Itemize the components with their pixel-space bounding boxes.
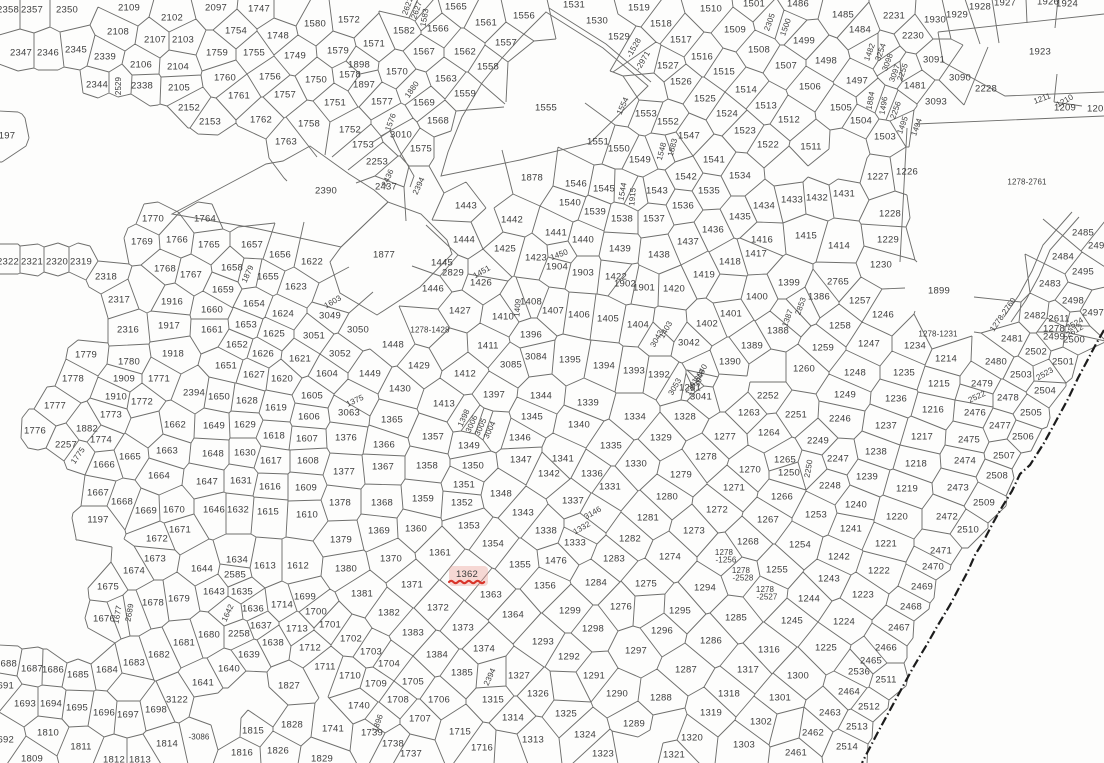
svg-text:1536: 1536 [672, 200, 694, 211]
svg-text:1776: 1776 [24, 425, 46, 436]
svg-text:1408: 1408 [520, 296, 542, 307]
svg-text:1705: 1705 [402, 676, 424, 687]
svg-text:3052: 3052 [329, 348, 351, 359]
svg-text:3041: 3041 [690, 391, 712, 402]
svg-text:2108: 2108 [107, 26, 129, 37]
svg-text:1282: 1282 [619, 533, 641, 544]
svg-text:1301: 1301 [769, 692, 791, 703]
svg-text:1923: 1923 [1029, 46, 1051, 57]
svg-text:1433: 1433 [781, 194, 803, 205]
svg-text:1222: 1222 [868, 565, 890, 576]
svg-text:1636: 1636 [242, 603, 264, 614]
svg-text:2829: 2829 [442, 267, 464, 278]
svg-text:1670: 1670 [163, 504, 185, 515]
svg-text:1631: 1631 [230, 475, 252, 486]
svg-text:1676: 1676 [93, 613, 115, 624]
svg-text:1410: 1410 [492, 311, 514, 322]
svg-text:1338: 1338 [535, 525, 557, 536]
svg-text:1749: 1749 [284, 50, 306, 61]
svg-text:1829: 1829 [311, 753, 333, 763]
svg-text:1660: 1660 [201, 304, 223, 315]
svg-text:2347: 2347 [10, 47, 32, 58]
svg-text:1757: 1757 [274, 89, 296, 100]
svg-text:1368: 1368 [371, 497, 393, 508]
svg-text:1429: 1429 [408, 360, 430, 371]
svg-text:1577: 1577 [371, 96, 393, 107]
svg-text:1396: 1396 [520, 329, 542, 340]
svg-text:1273: 1273 [683, 525, 705, 536]
svg-text:1253: 1253 [805, 509, 827, 520]
svg-text:1383: 1383 [402, 627, 424, 638]
svg-text:1882: 1882 [76, 423, 98, 434]
svg-text:1930: 1930 [924, 14, 946, 25]
svg-text:1218: 1218 [905, 458, 927, 469]
svg-text:1376: 1376 [335, 432, 357, 443]
svg-text:1537: 1537 [643, 213, 665, 224]
svg-text:2346: 2346 [37, 47, 59, 58]
svg-text:1706: 1706 [428, 694, 450, 705]
svg-text:1562: 1562 [454, 46, 476, 57]
svg-text:1741: 1741 [322, 723, 344, 734]
svg-text:1239: 1239 [856, 471, 878, 482]
svg-text:2319: 2319 [70, 256, 92, 267]
svg-text:1381: 1381 [351, 588, 373, 599]
svg-text:1215: 1215 [928, 378, 950, 389]
svg-text:2097: 2097 [205, 2, 227, 13]
svg-text:1355: 1355 [509, 559, 531, 570]
svg-text:1333: 1333 [564, 537, 586, 548]
svg-text:1377: 1377 [333, 466, 355, 477]
svg-text:1278-1428: 1278-1428 [410, 325, 450, 334]
svg-text:1639: 1639 [238, 649, 260, 660]
svg-text:2478: 2478 [997, 392, 1019, 403]
svg-text:1613: 1613 [254, 560, 276, 571]
svg-text:1314: 1314 [502, 712, 524, 723]
svg-text:1292: 1292 [558, 651, 580, 662]
svg-text:1767: 1767 [180, 269, 202, 280]
svg-text:1566: 1566 [427, 23, 449, 34]
svg-text:1436: 1436 [702, 224, 724, 235]
svg-text:1501: 1501 [743, 0, 765, 9]
svg-text:1778: 1778 [62, 373, 84, 384]
svg-text:2230: 2230 [902, 30, 924, 41]
svg-text:1563: 1563 [435, 73, 457, 84]
svg-text:1637: 1637 [250, 620, 272, 631]
svg-text:1519: 1519 [628, 2, 650, 13]
svg-text:1630: 1630 [234, 447, 256, 458]
svg-text:1828: 1828 [281, 719, 303, 730]
svg-text:2479: 2479 [971, 378, 993, 389]
svg-text:1385: 1385 [451, 667, 473, 678]
svg-text:2504: 2504 [1034, 385, 1056, 396]
svg-text:1619: 1619 [265, 402, 287, 413]
svg-text:1656: 1656 [269, 249, 291, 260]
svg-text:1228: 1228 [879, 208, 901, 219]
svg-text:1618: 1618 [263, 430, 285, 441]
svg-text:1406: 1406 [568, 309, 590, 320]
svg-text:1657: 1657 [241, 239, 263, 250]
svg-text:1629: 1629 [234, 419, 256, 430]
svg-text:1569: 1569 [413, 97, 435, 108]
svg-text:1510: 1510 [700, 3, 722, 14]
svg-text:1384: 1384 [426, 649, 448, 660]
svg-text:1643: 1643 [203, 586, 225, 597]
svg-text:1667: 1667 [87, 487, 109, 498]
svg-text:1229: 1229 [877, 234, 899, 245]
svg-text:3122: 3122 [166, 694, 188, 705]
svg-text:2474: 2474 [954, 455, 976, 466]
svg-text:1288: 1288 [650, 692, 672, 703]
svg-text:1668: 1668 [111, 496, 133, 507]
svg-text:2231: 2231 [883, 10, 905, 21]
svg-text:1244: 1244 [798, 593, 820, 604]
svg-text:1663: 1663 [156, 445, 178, 456]
svg-text:1699: 1699 [294, 591, 316, 602]
svg-text:1319: 1319 [700, 707, 722, 718]
svg-text:1369: 1369 [368, 525, 390, 536]
svg-text:1346: 1346 [509, 432, 531, 443]
svg-text:2503: 2503 [1010, 369, 1032, 380]
svg-text:1740: 1740 [348, 700, 370, 711]
svg-text:1674: 1674 [123, 565, 145, 576]
svg-text:1245: 1245 [781, 615, 803, 626]
svg-text:1525: 1525 [694, 93, 716, 104]
svg-text:1780: 1780 [118, 356, 140, 367]
svg-text:1762: 1762 [250, 114, 272, 125]
svg-text:1352: 1352 [451, 497, 473, 508]
svg-text:1266: 1266 [771, 491, 793, 502]
svg-text:1238: 1238 [865, 446, 887, 457]
svg-text:1415: 1415 [795, 230, 817, 241]
svg-text:1916: 1916 [161, 296, 183, 307]
svg-text:1263: 1263 [738, 407, 760, 418]
svg-text:1348: 1348 [490, 488, 512, 499]
svg-text:1259: 1259 [812, 342, 834, 353]
svg-text:2471: 2471 [930, 545, 952, 556]
svg-text:2339: 2339 [94, 51, 116, 62]
svg-text:1405: 1405 [597, 313, 619, 324]
svg-text:1695: 1695 [66, 702, 88, 713]
svg-text:1608: 1608 [297, 455, 319, 466]
svg-text:1669: 1669 [135, 505, 157, 516]
svg-text:1449: 1449 [359, 368, 381, 379]
svg-text:1604: 1604 [316, 368, 338, 379]
svg-text:1386: 1386 [808, 291, 830, 302]
svg-text:2461: 2461 [785, 747, 807, 758]
svg-text:2765: 2765 [827, 276, 849, 287]
svg-text:1765: 1765 [198, 239, 220, 250]
svg-text:1250: 1250 [778, 467, 800, 478]
svg-text:1624: 1624 [272, 308, 294, 319]
svg-text:1334: 1334 [624, 411, 646, 422]
svg-text:1686: 1686 [42, 664, 64, 675]
svg-text:1527: 1527 [657, 60, 679, 71]
svg-text:1315: 1315 [482, 694, 504, 705]
svg-text:1760: 1760 [214, 72, 236, 83]
svg-text:1538: 1538 [611, 213, 633, 224]
svg-text:1281: 1281 [637, 512, 659, 523]
svg-text:2153: 2153 [199, 116, 221, 127]
svg-text:1654: 1654 [243, 298, 265, 309]
svg-text:1344: 1344 [530, 390, 552, 401]
svg-text:1223: 1223 [852, 589, 874, 600]
svg-text:1240: 1240 [845, 499, 867, 510]
svg-text:2350: 2350 [56, 4, 78, 15]
svg-text:1351: 1351 [453, 479, 475, 490]
svg-text:1327: 1327 [508, 670, 530, 681]
svg-text:1910: 1910 [105, 391, 127, 402]
svg-text:1758: 1758 [298, 118, 320, 129]
svg-text:1331: 1331 [599, 481, 621, 492]
svg-text:1638: 1638 [262, 637, 284, 648]
svg-text:1909: 1909 [113, 373, 135, 384]
svg-text:1426: 1426 [470, 277, 492, 288]
svg-text:2505: 2505 [1020, 407, 1042, 418]
svg-text:1575: 1575 [410, 143, 432, 154]
svg-text:3090: 3090 [949, 72, 971, 83]
svg-text:1278-2761: 1278-2761 [1007, 177, 1047, 186]
svg-text:1662: 1662 [164, 419, 186, 430]
svg-text:3051: 3051 [303, 330, 325, 341]
svg-text:2512: 2512 [858, 701, 880, 712]
svg-text:1772: 1772 [131, 396, 153, 407]
svg-text:1899: 1899 [928, 285, 950, 296]
svg-text:1697: 1697 [117, 709, 139, 720]
svg-text:2248: 2248 [819, 480, 841, 491]
svg-text:1897: 1897 [353, 79, 375, 90]
svg-text:1929: 1929 [946, 9, 968, 20]
svg-text:1278: 1278 [695, 451, 717, 462]
svg-text:1712: 1712 [299, 642, 321, 653]
svg-text:1572: 1572 [338, 14, 360, 25]
svg-text:1616: 1616 [259, 481, 281, 492]
svg-text:1419: 1419 [693, 269, 715, 280]
svg-text:1243: 1243 [818, 573, 840, 584]
svg-text:1568: 1568 [427, 115, 449, 126]
svg-text:1701: 1701 [319, 619, 341, 630]
svg-text:1557: 1557 [495, 37, 517, 48]
svg-text:1508: 1508 [748, 44, 770, 55]
svg-text:1248: 1248 [844, 367, 866, 378]
svg-text:1279: 1279 [670, 469, 692, 480]
svg-text:1671: 1671 [169, 524, 191, 535]
svg-text:1511: 1511 [800, 141, 821, 152]
svg-text:1214: 1214 [935, 353, 957, 364]
svg-text:2228: 2228 [975, 83, 997, 94]
svg-text:1394: 1394 [593, 360, 615, 371]
svg-text:1546: 1546 [565, 178, 587, 189]
svg-text:1507: 1507 [775, 60, 797, 71]
svg-text:1615: 1615 [257, 506, 279, 517]
svg-text:1234: 1234 [904, 340, 926, 351]
svg-text:2470: 2470 [922, 561, 944, 572]
svg-text:2320: 2320 [46, 256, 68, 267]
svg-text:1759: 1759 [206, 47, 228, 58]
svg-text:2257: 2257 [55, 439, 77, 450]
svg-text:1296: 1296 [651, 625, 673, 636]
svg-text:1673: 1673 [144, 553, 166, 564]
svg-text:1260: 1260 [793, 363, 815, 374]
svg-text:1441: 1441 [545, 227, 567, 238]
svg-text:-1256: -1256 [716, 556, 737, 565]
svg-text:2357: 2357 [21, 4, 43, 15]
svg-text:3063: 3063 [338, 407, 360, 418]
svg-text:1299: 1299 [559, 605, 581, 616]
svg-text:1400: 1400 [746, 291, 768, 302]
svg-text:2480: 2480 [985, 356, 1007, 367]
svg-text:1318: 1318 [718, 688, 740, 699]
svg-text:1485: 1485 [832, 9, 854, 20]
svg-text:2468: 2468 [900, 601, 922, 612]
svg-text:1658: 1658 [221, 262, 243, 273]
svg-text:1329: 1329 [650, 432, 672, 443]
svg-text:1647: 1647 [196, 476, 218, 487]
svg-text:1541: 1541 [703, 154, 725, 165]
svg-text:2462: 2462 [802, 727, 824, 738]
svg-text:1632: 1632 [227, 504, 249, 515]
svg-text:1661: 1661 [201, 324, 223, 335]
svg-text:1779: 1779 [75, 349, 97, 360]
svg-text:1769: 1769 [131, 236, 153, 247]
svg-text:1644: 1644 [191, 563, 213, 574]
svg-text:1264: 1264 [758, 427, 780, 438]
svg-text:1230: 1230 [870, 259, 892, 270]
svg-text:1220: 1220 [886, 511, 908, 522]
svg-text:1539: 1539 [584, 206, 606, 217]
svg-text:1448: 1448 [382, 339, 404, 350]
svg-text:1378: 1378 [329, 497, 351, 508]
svg-text:1423: 1423 [525, 252, 547, 263]
svg-text:2498: 2498 [1062, 295, 1084, 306]
svg-text:-3086: -3086 [189, 732, 210, 741]
svg-text:1556: 1556 [513, 10, 535, 21]
svg-text:2529: 2529 [114, 76, 123, 95]
svg-text:1237: 1237 [875, 420, 897, 431]
svg-text:1691: 1691 [0, 680, 14, 691]
svg-text:1571: 1571 [363, 38, 385, 49]
svg-text:1374: 1374 [473, 643, 495, 654]
svg-text:1443: 1443 [455, 200, 477, 211]
svg-text:1623: 1623 [285, 281, 307, 292]
svg-text:2394: 2394 [183, 387, 205, 398]
svg-text:1766: 1766 [166, 234, 188, 245]
svg-text:1579: 1579 [327, 45, 349, 56]
svg-text:1246: 1246 [872, 309, 894, 320]
svg-text:1552: 1552 [657, 116, 679, 127]
svg-text:1754: 1754 [225, 25, 247, 36]
svg-text:1815: 1815 [242, 725, 264, 736]
svg-text:1358: 1358 [416, 460, 438, 471]
svg-text:1302: 1302 [750, 716, 772, 727]
svg-text:1748: 1748 [267, 30, 289, 41]
svg-text:1755: 1755 [243, 47, 265, 58]
svg-text:2251: 2251 [785, 409, 807, 420]
svg-text:1915: 1915 [627, 187, 638, 206]
svg-text:1365: 1365 [381, 414, 403, 425]
svg-text:1484: 1484 [849, 24, 871, 35]
svg-text:1293: 1293 [532, 636, 554, 647]
svg-text:1666: 1666 [93, 459, 115, 470]
svg-text:3050: 3050 [347, 324, 369, 335]
svg-text:2499: 2499 [1043, 331, 1065, 342]
svg-text:1634: 1634 [226, 554, 248, 565]
svg-text:1646: 1646 [203, 504, 225, 515]
svg-text:2508: 2508 [986, 470, 1008, 481]
svg-text:1357: 1357 [422, 431, 444, 442]
svg-text:1255: 1255 [766, 564, 788, 575]
svg-text:1650: 1650 [208, 391, 230, 402]
svg-text:1928: 1928 [969, 1, 991, 12]
svg-text:1353: 1353 [458, 520, 480, 531]
svg-text:1278-1231: 1278-1231 [918, 329, 958, 338]
svg-text:1626: 1626 [252, 348, 274, 359]
svg-text:1328: 1328 [674, 411, 696, 422]
svg-text:1341: 1341 [552, 453, 574, 464]
svg-text:1682: 1682 [148, 649, 170, 660]
svg-text:1268: 1268 [737, 536, 759, 547]
svg-text:1393: 1393 [623, 365, 645, 376]
svg-text:1337: 1337 [562, 495, 584, 506]
svg-text:1826: 1826 [267, 745, 289, 756]
svg-text:1739: 1739 [361, 727, 383, 738]
svg-text:1420: 1420 [663, 283, 685, 294]
svg-text:-2528: -2528 [733, 574, 754, 583]
svg-text:1430: 1430 [389, 383, 411, 394]
svg-text:1481: 1481 [904, 80, 926, 91]
svg-text:2344: 2344 [86, 79, 108, 90]
svg-text:1219: 1219 [896, 483, 918, 494]
svg-text:1360: 1360 [405, 523, 427, 534]
svg-text:2246: 2246 [829, 413, 851, 424]
svg-text:1694: 1694 [40, 698, 62, 709]
svg-text:2358: 2358 [0, 4, 19, 15]
svg-text:2109: 2109 [118, 2, 140, 13]
svg-text:1367: 1367 [372, 461, 394, 472]
svg-text:1763: 1763 [275, 136, 297, 147]
svg-text:1313: 1313 [522, 734, 544, 745]
svg-text:1335: 1335 [600, 440, 622, 451]
svg-text:1664: 1664 [148, 470, 170, 481]
svg-text:1752: 1752 [339, 124, 361, 135]
svg-text:1399: 1399 [778, 277, 800, 288]
svg-text:1364: 1364 [502, 609, 524, 620]
svg-text:1446: 1446 [422, 283, 444, 294]
svg-text:2502: 2502 [1025, 346, 1047, 357]
svg-text:1702: 1702 [340, 633, 362, 644]
svg-text:1659: 1659 [212, 284, 234, 295]
svg-text:1434: 1434 [753, 200, 775, 211]
svg-text:2475: 2475 [958, 434, 980, 445]
svg-text:1236: 1236 [885, 393, 907, 404]
svg-text:1559: 1559 [454, 88, 476, 99]
svg-text:1540: 1540 [559, 197, 581, 208]
svg-text:1655: 1655 [257, 271, 279, 282]
svg-text:1549: 1549 [629, 154, 651, 165]
svg-text:1504: 1504 [850, 115, 872, 126]
svg-text:1349: 1349 [458, 440, 480, 451]
svg-text:1545: 1545 [593, 183, 615, 194]
svg-text:2501: 2501 [1052, 356, 1074, 367]
svg-text:1675: 1675 [97, 581, 119, 592]
svg-text:1289: 1289 [623, 718, 645, 729]
svg-text:1409: 1409 [512, 298, 523, 317]
svg-text:1903: 1903 [572, 267, 594, 278]
svg-text:1277: 1277 [714, 431, 736, 442]
svg-text:2467: 2467 [888, 622, 910, 633]
svg-text:1432: 1432 [806, 192, 828, 203]
svg-text:1418: 1418 [719, 256, 741, 267]
svg-text:1606: 1606 [298, 411, 320, 422]
